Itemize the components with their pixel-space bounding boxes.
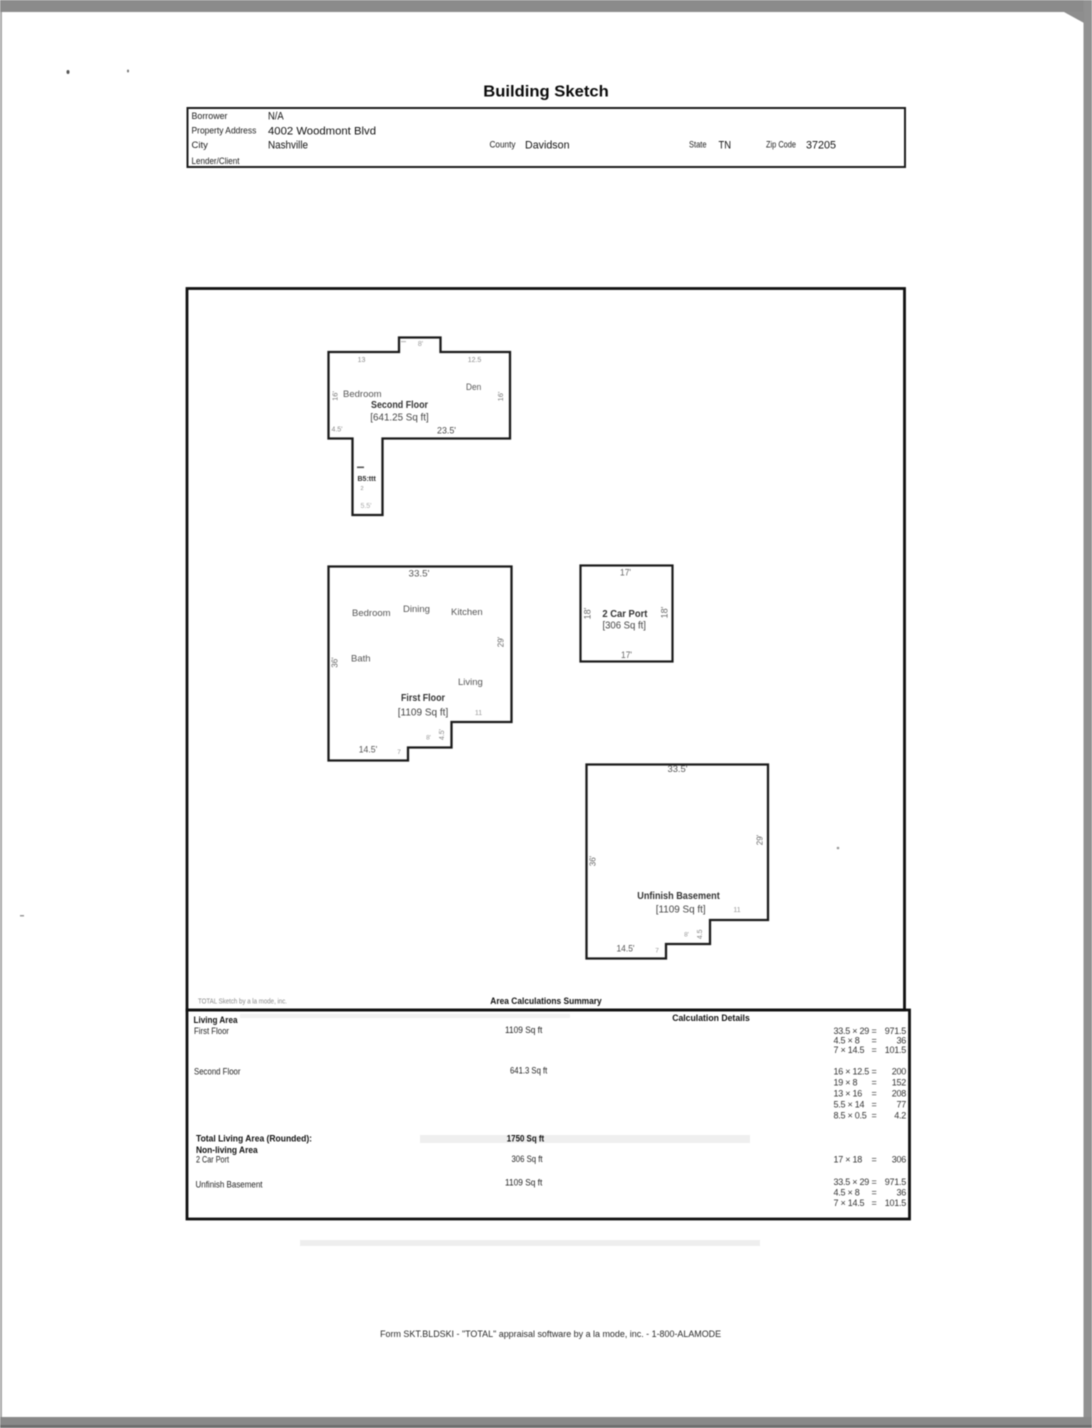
svg-text:=: = <box>871 1045 876 1055</box>
svg-text:Living Area: Living Area <box>194 1015 239 1025</box>
svg-text:=: = <box>871 1100 876 1110</box>
svg-text:152: 152 <box>892 1078 907 1088</box>
svg-text:7 × 14.5: 7 × 14.5 <box>834 1198 865 1208</box>
svg-text:Den: Den <box>466 382 481 393</box>
svg-text:Total Living Area (Rounded):: Total Living Area (Rounded): <box>196 1134 312 1144</box>
svg-text:[1109 Sq ft]: [1109 Sq ft] <box>656 905 706 916</box>
svg-text:Unfinish Basement: Unfinish Basement <box>637 891 720 902</box>
svg-text:TN: TN <box>719 139 732 151</box>
svg-text:18': 18' <box>583 607 593 619</box>
svg-text:=: = <box>871 1177 876 1187</box>
svg-text:4.5: 4.5 <box>697 929 704 939</box>
svg-text:Nashville: Nashville <box>268 140 308 152</box>
svg-text:8': 8' <box>418 341 423 348</box>
svg-text:11: 11 <box>733 907 740 914</box>
svg-text:7: 7 <box>655 948 659 955</box>
svg-text:Kitchen: Kitchen <box>451 607 483 618</box>
svg-text:208: 208 <box>892 1089 907 1099</box>
svg-text:2 Car Port: 2 Car Port <box>602 609 648 620</box>
svg-text:Non-living Area: Non-living Area <box>196 1145 259 1155</box>
svg-text:4.2: 4.2 <box>894 1111 906 1121</box>
svg-text:306: 306 <box>892 1155 907 1165</box>
svg-text:[306 Sq ft]: [306 Sq ft] <box>602 621 646 632</box>
svg-text:Borrower: Borrower <box>192 111 228 122</box>
svg-text:=: = <box>871 1111 876 1121</box>
svg-text:641.3 Sq ft: 641.3 Sq ft <box>510 1066 548 1076</box>
svg-text:36: 36 <box>896 1188 906 1198</box>
svg-text:33.5': 33.5' <box>409 569 430 579</box>
svg-text:[1109 Sq ft]: [1109 Sq ft] <box>398 708 449 719</box>
svg-text:5.5': 5.5' <box>360 503 371 510</box>
svg-text:17 × 18: 17 × 18 <box>834 1155 863 1165</box>
svg-text:N/A: N/A <box>268 111 284 123</box>
svg-text:Second Floor: Second Floor <box>371 400 428 411</box>
svg-text:14.5': 14.5' <box>359 745 378 755</box>
svg-text:=: = <box>871 1078 876 1088</box>
svg-text:29': 29' <box>755 834 764 845</box>
svg-text:B5:ttt: B5:ttt <box>358 476 377 483</box>
svg-text:36: 36 <box>896 1036 906 1046</box>
svg-text:Zip Code: Zip Code <box>766 140 796 151</box>
svg-text:101.5: 101.5 <box>885 1045 907 1055</box>
svg-text:Form SKT.BLDSKI - "TOTAL" appr: Form SKT.BLDSKI - "TOTAL" appraisal soft… <box>380 1329 721 1339</box>
svg-text:County: County <box>490 140 516 151</box>
svg-text:33.5 × 29: 33.5 × 29 <box>834 1177 870 1187</box>
svg-text:Unfinish Basement: Unfinish Basement <box>196 1179 263 1189</box>
svg-text:Living: Living <box>458 677 483 688</box>
svg-text:State: State <box>689 140 707 151</box>
svg-text:Lender/Client: Lender/Client <box>192 156 240 167</box>
svg-text:971.5: 971.5 <box>885 1177 907 1187</box>
svg-text:4002 Woodmont Blvd: 4002 Woodmont Blvd <box>268 126 376 138</box>
svg-text:16': 16' <box>496 391 505 401</box>
svg-text:[641.25 Sq ft]: [641.25 Sq ft] <box>370 413 429 424</box>
svg-text:=: = <box>871 1198 876 1208</box>
svg-text:19 × 8: 19 × 8 <box>834 1078 858 1088</box>
svg-text:101.5: 101.5 <box>885 1198 907 1208</box>
svg-text:29': 29' <box>496 636 505 647</box>
svg-text:Calculation Details: Calculation Details <box>672 1013 750 1023</box>
svg-text:Bedroom: Bedroom <box>343 389 382 400</box>
svg-text:First Floor: First Floor <box>401 693 445 704</box>
svg-text:4.5': 4.5' <box>331 427 342 434</box>
svg-text:14.5': 14.5' <box>617 944 635 954</box>
svg-text:36': 36' <box>330 657 339 668</box>
svg-text:16 × 12.5: 16 × 12.5 <box>834 1067 870 1077</box>
svg-text:8': 8' <box>426 735 431 742</box>
svg-text:13 × 16: 13 × 16 <box>834 1089 863 1099</box>
svg-text:23.5': 23.5' <box>437 426 456 436</box>
svg-text:2: 2 <box>360 486 363 492</box>
svg-text:36': 36' <box>588 855 597 866</box>
svg-text:Building Sketch: Building Sketch <box>483 84 609 101</box>
svg-text:TOTAL Sketch by a la mode, inc: TOTAL Sketch by a la mode, inc. <box>198 999 287 1006</box>
svg-text:=: = <box>871 1067 876 1077</box>
svg-text:4.5 × 8: 4.5 × 8 <box>834 1036 860 1046</box>
svg-text:971.5: 971.5 <box>885 1026 907 1036</box>
svg-text:Property Address: Property Address <box>192 126 257 137</box>
svg-text:=: = <box>871 1036 876 1046</box>
svg-text:4.5': 4.5' <box>439 729 446 740</box>
svg-text:12.5: 12.5 <box>468 357 482 364</box>
svg-text:Davidson: Davidson <box>525 140 570 152</box>
svg-text:306 Sq ft: 306 Sq ft <box>512 1154 543 1164</box>
svg-text:Second Floor: Second Floor <box>194 1067 241 1077</box>
svg-text:33.5 × 29: 33.5 × 29 <box>834 1026 870 1036</box>
svg-text:200: 200 <box>892 1067 907 1077</box>
svg-text:37205: 37205 <box>806 139 836 151</box>
svg-text:Bath: Bath <box>351 654 371 665</box>
svg-text:=: = <box>871 1026 876 1036</box>
svg-text:1109 Sq ft: 1109 Sq ft <box>505 1178 543 1188</box>
svg-text:7: 7 <box>397 749 401 756</box>
svg-text:33.5': 33.5' <box>668 764 688 774</box>
svg-text:1750 Sq ft: 1750 Sq ft <box>507 1134 544 1144</box>
svg-text:77: 77 <box>896 1100 906 1110</box>
svg-text:8.5 × 0.5: 8.5 × 0.5 <box>834 1111 867 1121</box>
svg-text:17': 17' <box>621 650 632 661</box>
svg-text:11: 11 <box>475 710 482 717</box>
svg-text:16': 16' <box>331 391 340 401</box>
svg-text:Dining: Dining <box>403 604 430 615</box>
svg-text:City: City <box>192 140 209 151</box>
svg-text:17': 17' <box>620 568 631 579</box>
svg-text:=: = <box>871 1188 876 1198</box>
svg-text:18': 18' <box>659 606 669 618</box>
svg-text:=: = <box>871 1155 876 1165</box>
svg-text:8': 8' <box>684 932 689 939</box>
svg-text:5.5 × 14: 5.5 × 14 <box>834 1100 865 1110</box>
svg-text:=: = <box>871 1089 876 1099</box>
svg-text:First Floor: First Floor <box>194 1026 229 1036</box>
svg-text:13: 13 <box>358 357 366 364</box>
svg-text:7 × 14.5: 7 × 14.5 <box>834 1045 865 1055</box>
svg-text:Bedroom: Bedroom <box>352 608 391 619</box>
svg-text:Area Calculations Summary: Area Calculations Summary <box>490 996 601 1006</box>
svg-text:1109 Sq ft: 1109 Sq ft <box>505 1025 543 1035</box>
svg-text:2 Car Port: 2 Car Port <box>196 1155 229 1165</box>
svg-text:4.5 × 8: 4.5 × 8 <box>834 1188 860 1198</box>
